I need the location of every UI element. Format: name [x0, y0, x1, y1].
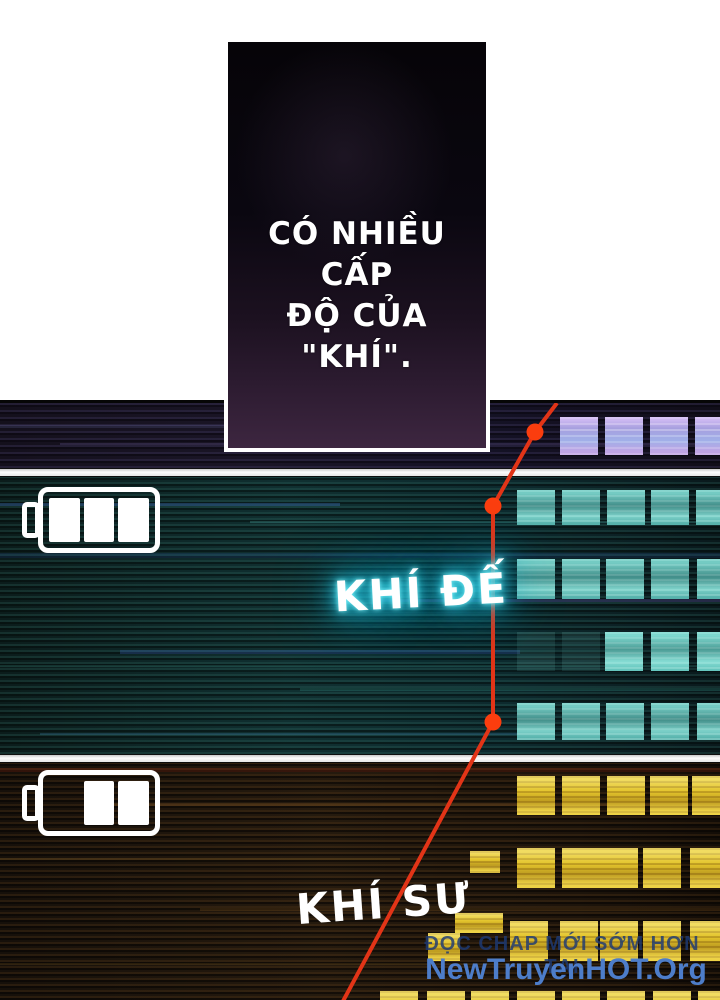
glitch-square-teal: [697, 703, 720, 740]
glitch-streak: [300, 688, 720, 691]
comic-page: CÓ NHIỀU CẤP ĐỘ CỦA "KHÍ".: [0, 0, 720, 1000]
level-label-khi-de: KHÍ ĐẾ: [333, 563, 509, 621]
glitch-square-purple: [560, 417, 598, 455]
glitch-square-purple: [650, 417, 688, 455]
glitch-square-gold: [643, 848, 681, 888]
glitch-streak: [0, 553, 720, 558]
battery-terminal: [22, 785, 40, 821]
glitch-square-gold: [692, 776, 720, 815]
battery-terminal: [22, 502, 40, 538]
glitch-square-gold: [600, 848, 638, 888]
narration-line-1: CÓ NHIỀU CẤP: [228, 214, 486, 296]
glitch-square-teal-faint: [562, 632, 600, 671]
narration-line-2: ĐỘ CỦA "KHÍ".: [228, 296, 486, 378]
glitch-streak: [40, 733, 540, 735]
glitch-square-teal: [517, 703, 555, 740]
glitch-square-gold: [517, 848, 555, 888]
glitch-square-teal: [697, 632, 720, 671]
glitch-square-teal: [606, 559, 644, 599]
glitch-square-teal: [651, 632, 689, 671]
glitch-streak: [120, 650, 520, 654]
glitch-square-gold-partial: [470, 851, 500, 873]
glitch-square-teal-faint: [517, 632, 555, 671]
glitch-streak: [250, 521, 720, 523]
narration-panel: CÓ NHIỀU CẤP ĐỘ CỦA "KHÍ".: [224, 38, 490, 452]
battery-cell-filled: [49, 498, 80, 542]
battery-cell-filled: [84, 781, 115, 825]
glitch-square-gold: [517, 776, 555, 815]
glitch-square-gold: [380, 991, 418, 1000]
battery-two-thirds-icon: [38, 770, 160, 836]
glitch-square-teal: [517, 559, 555, 599]
glitch-square-gold: [562, 776, 600, 815]
glitch-square-gold: [607, 776, 645, 815]
panel-divider: [0, 469, 720, 476]
glitch-square-gold: [471, 991, 509, 1000]
glitch-square-teal: [606, 703, 644, 740]
glitch-square-teal: [562, 703, 600, 740]
battery-cells: [49, 781, 149, 825]
glitch-square-gold: [698, 991, 720, 1000]
battery-cell-filled: [118, 498, 149, 542]
glitch-square-teal: [517, 490, 555, 525]
narration-text: CÓ NHIỀU CẤP ĐỘ CỦA "KHÍ".: [228, 214, 486, 378]
glitch-square-gold: [562, 991, 600, 1000]
panel-divider: [0, 755, 720, 762]
glitch-square-teal: [697, 559, 720, 599]
glitch-square-gold: [427, 991, 465, 1000]
battery-cell-empty: [49, 781, 80, 825]
glitch-square-gold: [607, 991, 645, 1000]
glitch-square-teal: [651, 559, 689, 599]
battery-cell-filled: [84, 498, 115, 542]
glitch-artwork: KHÍ ĐẾ KHÍ SƯ ĐỌC CHAP MỚI SỚM HƠN TẠI N…: [0, 400, 720, 1000]
watermark-site: NewTruyenHOT.Org: [412, 953, 720, 987]
glitch-square-teal: [651, 703, 689, 740]
glitch-square-teal: [562, 559, 600, 599]
glitch-square-teal: [562, 490, 600, 525]
glitch-square-gold: [690, 848, 720, 888]
glitch-square-purple: [695, 417, 720, 455]
glitch-square-gold: [650, 776, 688, 815]
battery-cells: [49, 498, 149, 542]
battery-cell-filled: [118, 781, 149, 825]
glitch-square-purple: [605, 417, 643, 455]
glitch-square-teal: [605, 632, 643, 671]
glitch-square-teal: [607, 490, 645, 525]
glitch-square-teal: [651, 490, 689, 525]
glitch-square-gold: [517, 991, 555, 1000]
glitch-square-teal: [696, 490, 720, 525]
glitch-square-gold: [653, 991, 691, 1000]
glitch-streak: [0, 858, 400, 860]
battery-full-icon: [38, 487, 160, 553]
glitch-square-gold: [562, 848, 600, 888]
